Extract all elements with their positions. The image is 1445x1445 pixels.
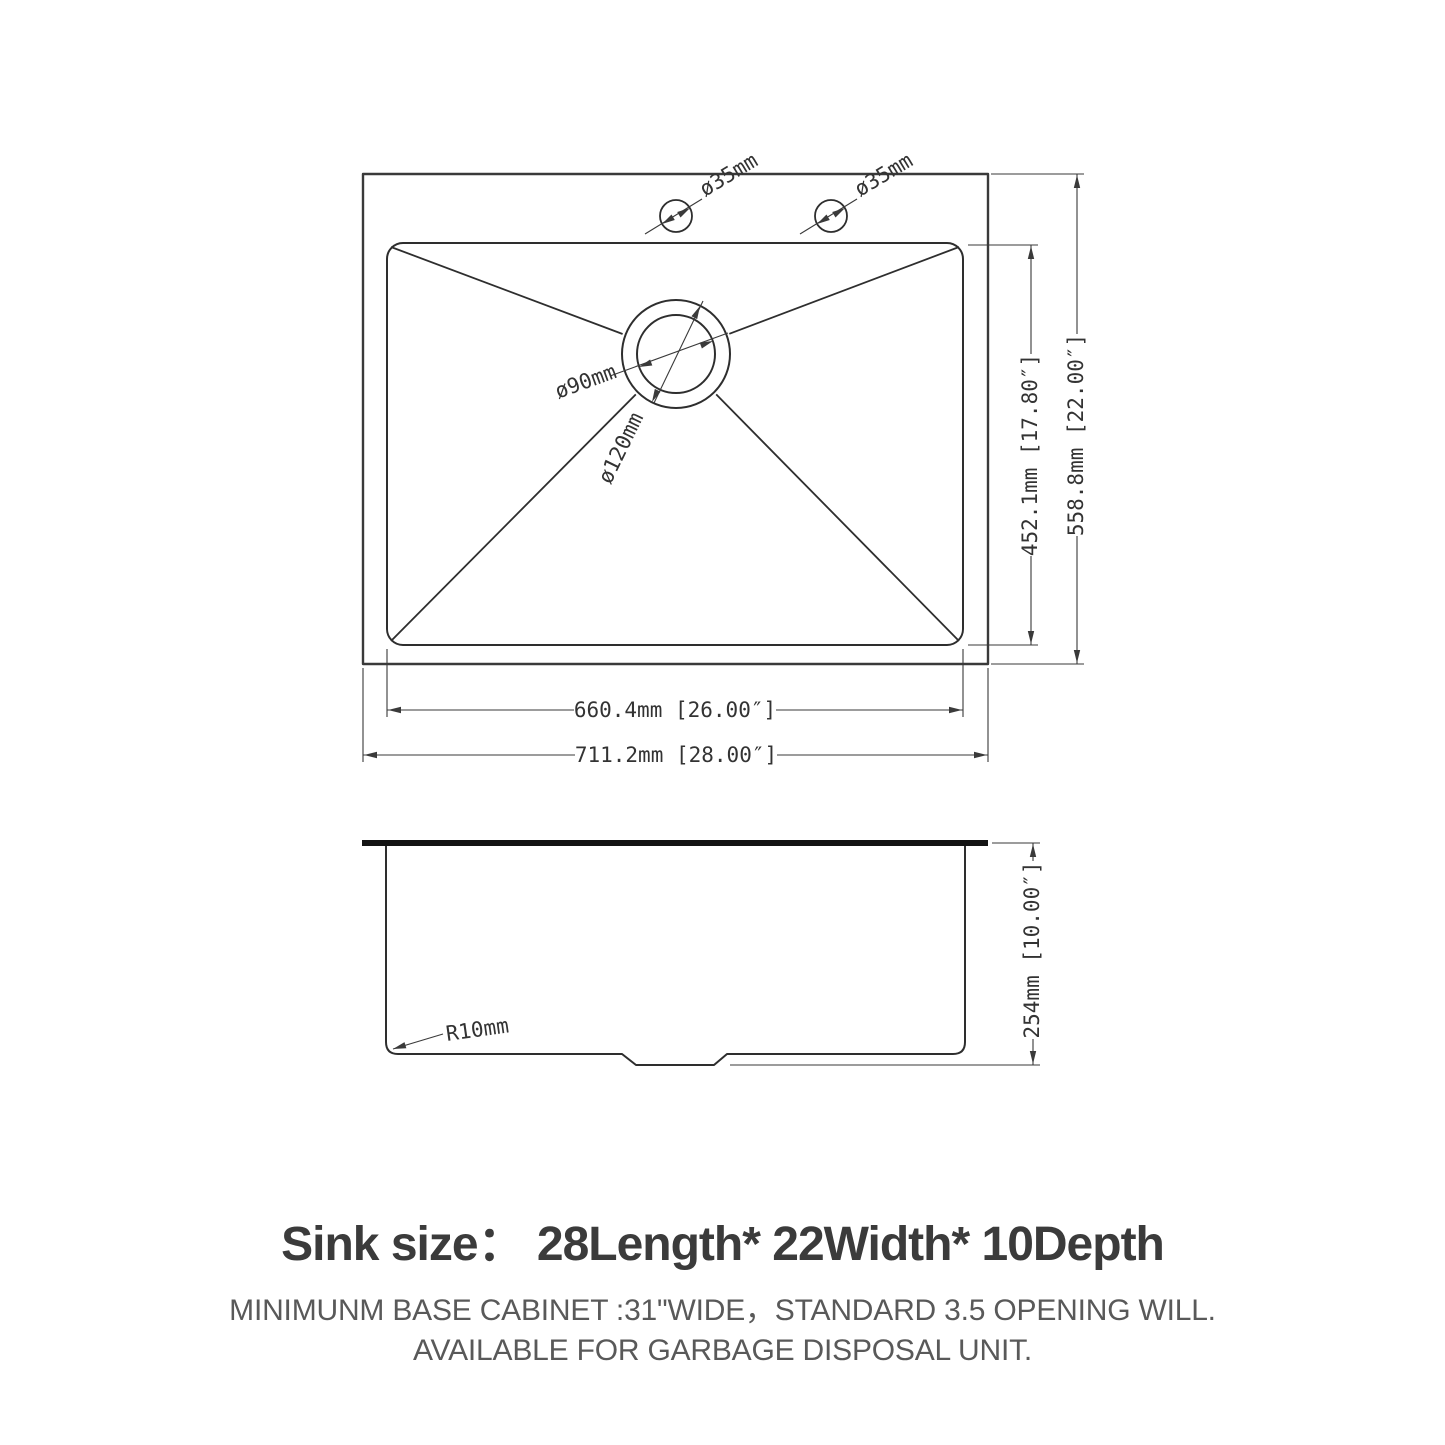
overall-width-label: 711.2mm [28.00″] bbox=[575, 743, 777, 767]
side-view: R10mm 254mm [10.00″] bbox=[362, 840, 1044, 1065]
faucet-hole-right bbox=[815, 200, 847, 232]
hole-left-diameter-label: ø35mm bbox=[695, 148, 762, 201]
rim-bar bbox=[362, 840, 988, 846]
bowl-height-label: 452.1mm [17.80″] bbox=[1018, 354, 1042, 556]
faucet-hole-left bbox=[660, 200, 692, 232]
note-line-2: AVAILABLE FOR GARBAGE DISPOSAL UNIT. bbox=[0, 1331, 1445, 1371]
dim-corner-radius: R10mm bbox=[392, 1013, 510, 1052]
corner-radius-label: R10mm bbox=[444, 1013, 510, 1046]
depth-label: 254mm [10.00″] bbox=[1020, 861, 1044, 1038]
dim-bowl-width: 660.4mm [26.00″] bbox=[387, 649, 963, 722]
overall-height-label: 558.8mm [22.00″] bbox=[1064, 334, 1088, 536]
drain-inner-circle bbox=[637, 315, 715, 393]
sink-spec-sheet: ø35mm ø35mm ø90mm ø120mm bbox=[0, 0, 1445, 1445]
bowl-width-label: 660.4mm [26.00″] bbox=[574, 698, 776, 722]
dim-hole-right: ø35mm bbox=[800, 148, 917, 234]
dim-bowl-height: 452.1mm [17.80″] bbox=[968, 245, 1042, 645]
hole-right-diameter-label: ø35mm bbox=[850, 148, 917, 201]
sink-bowl-outline bbox=[387, 243, 963, 645]
note-line-1: MINIMUNM BASE CABINET :31"WIDE，STANDARD … bbox=[0, 1291, 1445, 1331]
sink-size-heading: Sink size： 28Length* 22Width* 10Depth bbox=[0, 1204, 1445, 1274]
bowl-diagonals bbox=[391, 247, 959, 641]
top-view bbox=[363, 174, 988, 664]
drain-inner-diameter-label: ø90mm bbox=[552, 359, 620, 403]
top-view-dimensions: ø35mm ø35mm ø90mm ø120mm bbox=[363, 148, 1088, 767]
drain-outer-diameter-label: ø120mm bbox=[593, 409, 648, 488]
sink-outer-outline bbox=[363, 174, 988, 664]
drain-outer-circle bbox=[622, 300, 730, 408]
dim-depth: 254mm [10.00″] bbox=[730, 843, 1044, 1065]
footer-notes: MINIMUNM BASE CABINET :31"WIDE，STANDARD … bbox=[0, 1291, 1445, 1371]
dim-hole-left: ø35mm bbox=[645, 148, 762, 234]
